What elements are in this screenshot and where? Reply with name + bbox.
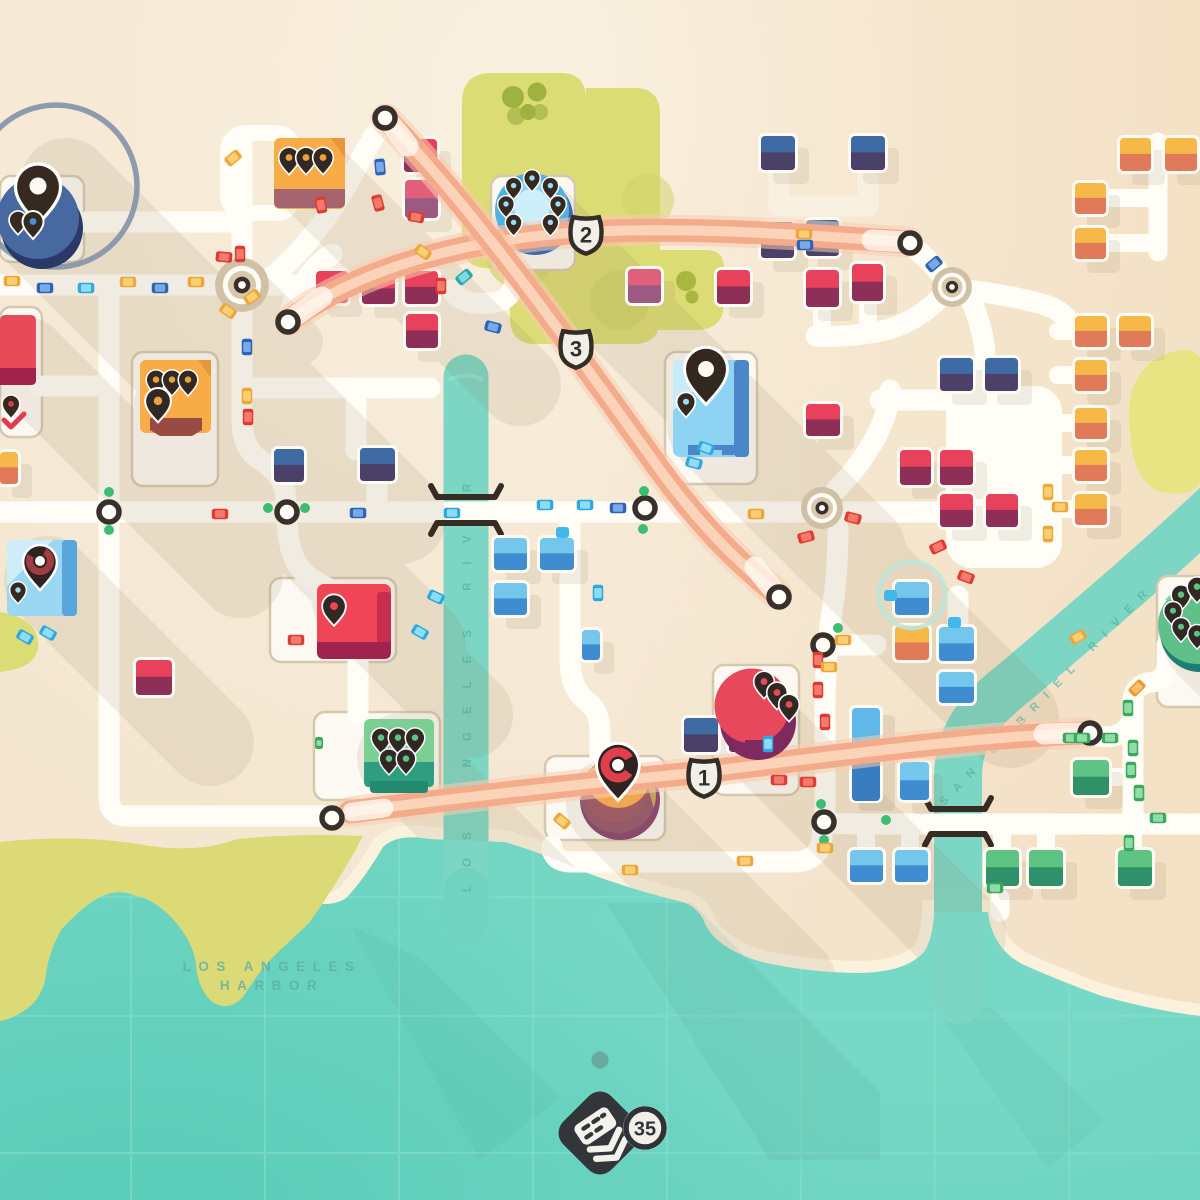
svg-text:2: 2 xyxy=(580,223,592,248)
svg-text:1: 1 xyxy=(698,766,710,791)
svg-text:LOS ANGELES: LOS ANGELES xyxy=(183,959,362,974)
svg-text:35: 35 xyxy=(634,1119,656,1141)
svg-text:3: 3 xyxy=(570,337,582,362)
svg-text:HARBOR: HARBOR xyxy=(220,978,324,993)
